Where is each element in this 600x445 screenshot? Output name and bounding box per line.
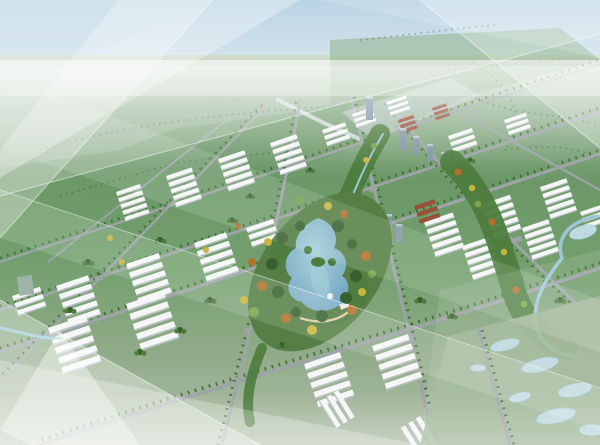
masterplan-rendering [0, 0, 600, 445]
lake-island [311, 257, 325, 267]
screenshot-canvas [0, 0, 600, 445]
green-slab-building [17, 275, 34, 296]
bottom-haze [0, 392, 600, 445]
